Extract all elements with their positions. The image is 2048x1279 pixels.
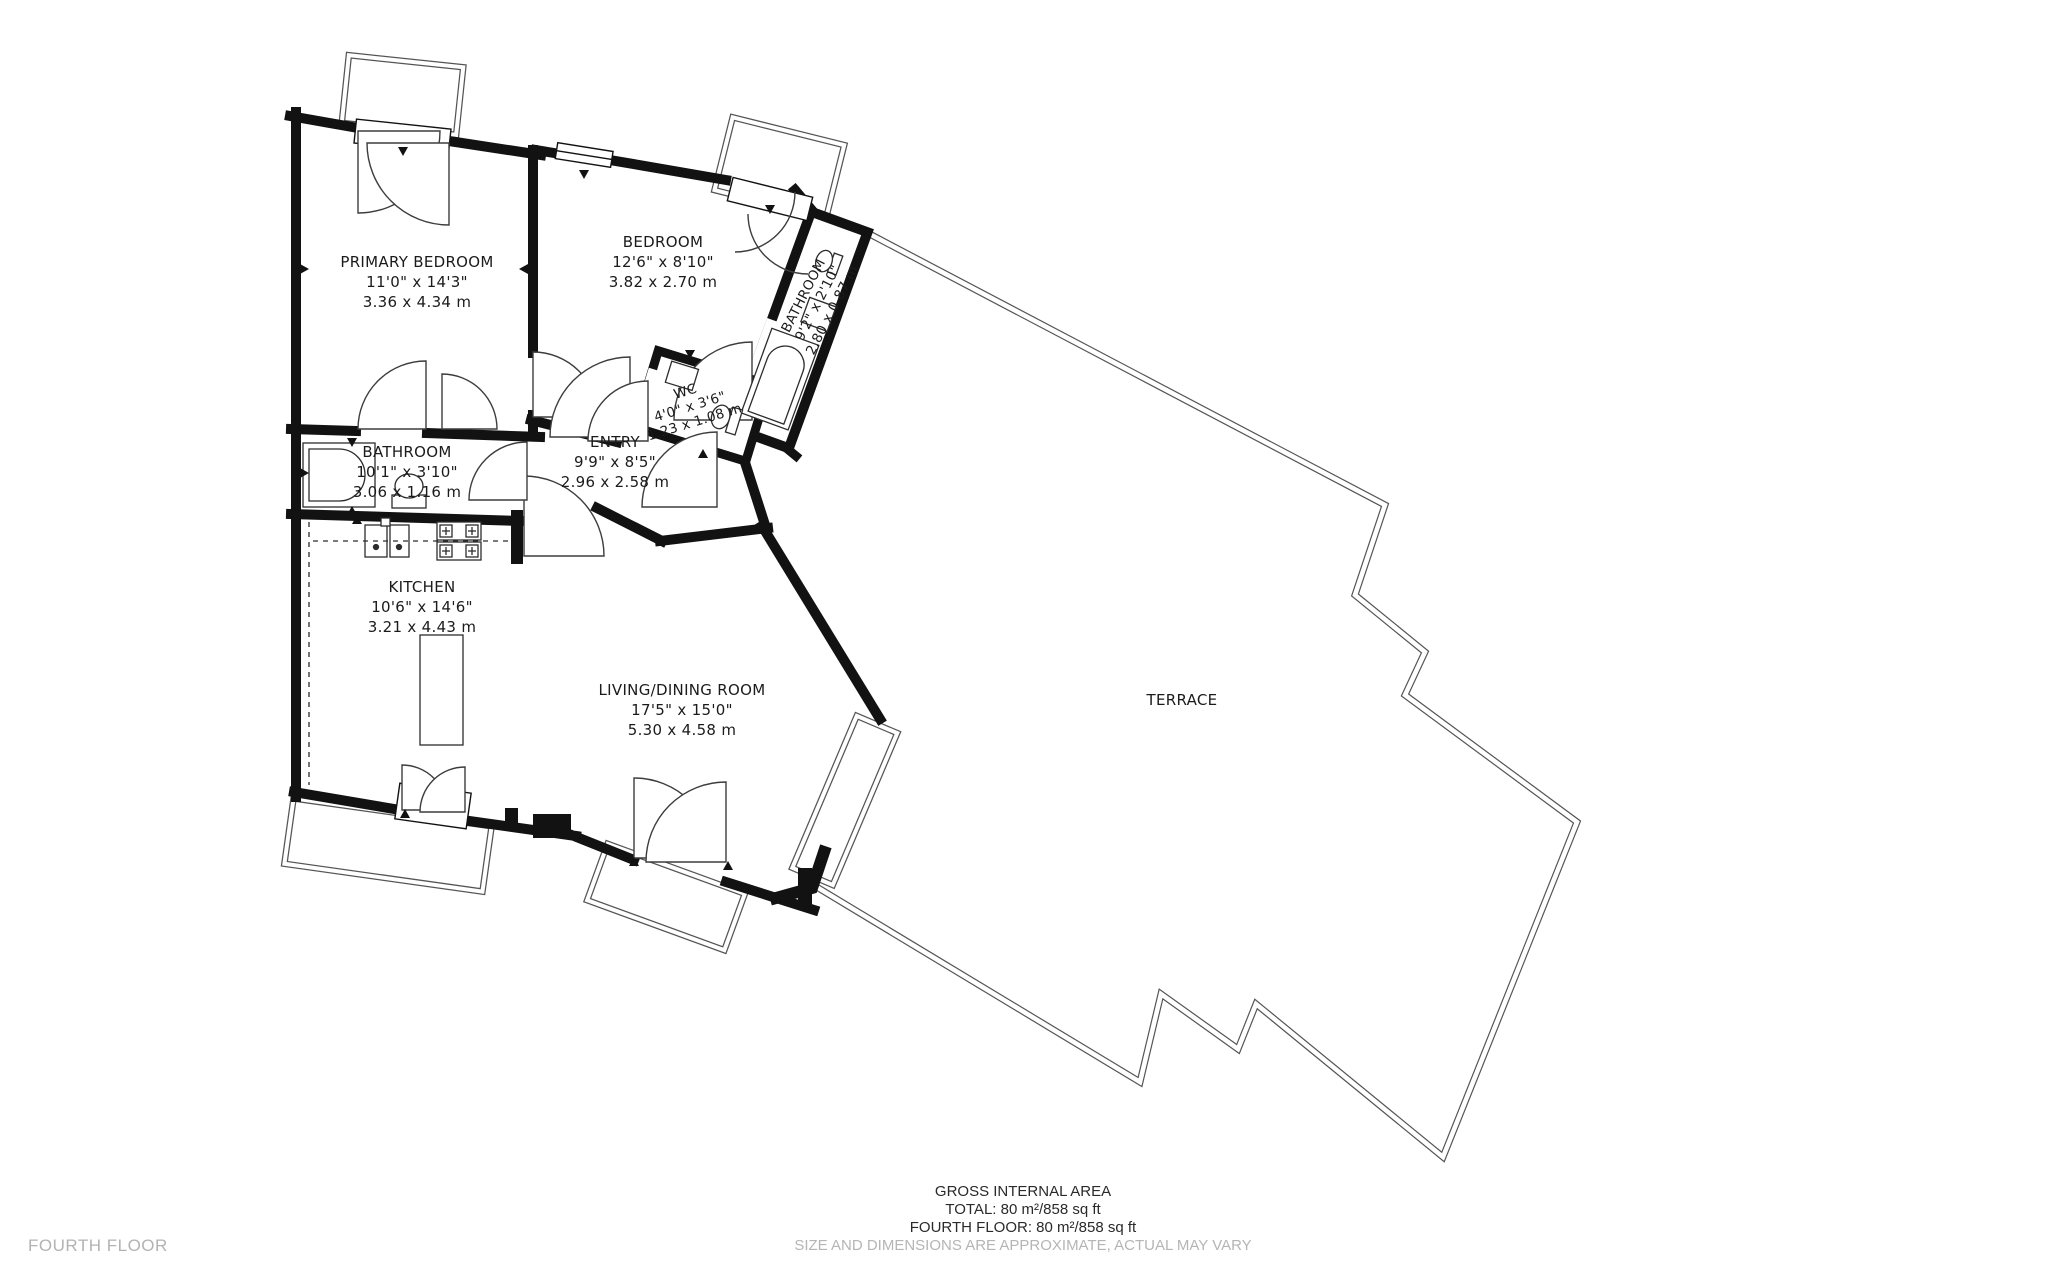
room-label-terrace: TERRACE	[1147, 690, 1218, 710]
room-dims-m: 3.36 x 4.34 m	[340, 292, 493, 312]
room-name: LIVING/DINING ROOM	[599, 680, 766, 700]
floor-plan-drawing	[0, 0, 2048, 1279]
primary-bedroom-door	[358, 361, 426, 429]
room-name: PRIMARY BEDROOM	[340, 252, 493, 272]
room-dims-ft: 10'6" x 14'6"	[368, 597, 477, 617]
room-dims-m: 5.30 x 4.58 m	[599, 720, 766, 740]
kitchen-island	[420, 635, 463, 745]
floor-plan-page: PRIMARY BEDROOM 11'0" x 14'3" 3.36 x 4.3…	[0, 0, 2048, 1279]
room-label-bathroom: BATHROOM 10'1" x 3'10" 3.06 x 1.16 m	[353, 442, 462, 502]
room-name: KITCHEN	[368, 577, 477, 597]
room-name: ENTRY	[561, 432, 670, 452]
kitchen-sink	[365, 518, 409, 557]
room-label-bedroom: BEDROOM 12'6" x 8'10" 3.82 x 2.70 m	[609, 232, 718, 292]
room-label-kitchen: KITCHEN 10'6" x 14'6" 3.21 x 4.43 m	[368, 577, 477, 637]
room-dims-ft: 12'6" x 8'10"	[609, 252, 718, 272]
room-dims-m: 3.06 x 1.16 m	[353, 482, 462, 502]
total-area: TOTAL: 80 m²/858 sq ft	[794, 1201, 1251, 1219]
floor-name-label: FOURTH FLOOR	[28, 1236, 168, 1256]
room-dims-ft: 10'1" x 3'10"	[353, 462, 462, 482]
room-dims-m: 3.21 x 4.43 m	[368, 617, 477, 637]
room-dims-m: 2.96 x 2.58 m	[561, 472, 670, 492]
gross-internal-area-title: GROSS INTERNAL AREA	[794, 1183, 1251, 1201]
disclaimer: SIZE AND DIMENSIONS ARE APPROXIMATE, ACT…	[794, 1237, 1251, 1255]
room-dims-ft: 11'0" x 14'3"	[340, 272, 493, 292]
primary-bedroom-french-door-right	[367, 143, 449, 225]
room-dims-ft: 9'9" x 8'5"	[561, 452, 670, 472]
bedroom-window	[555, 143, 613, 168]
room-label-living-dining: LIVING/DINING ROOM 17'5" x 15'0" 5.30 x …	[599, 680, 766, 740]
area-summary: GROSS INTERNAL AREA TOTAL: 80 m²/858 sq …	[794, 1183, 1251, 1255]
room-dims-ft: 17'5" x 15'0"	[599, 700, 766, 720]
hall-door	[442, 374, 497, 429]
room-label-entry: ENTRY 9'9" x 8'5" 2.96 x 2.58 m	[561, 432, 670, 492]
room-name: BATHROOM	[353, 442, 462, 462]
room-label-primary-bedroom: PRIMARY BEDROOM 11'0" x 14'3" 3.36 x 4.3…	[340, 252, 493, 312]
room-name: BEDROOM	[609, 232, 718, 252]
room-dims-m: 3.82 x 2.70 m	[609, 272, 718, 292]
floor-area: FOURTH FLOOR: 80 m²/858 sq ft	[794, 1219, 1251, 1237]
room-name: TERRACE	[1147, 690, 1218, 710]
bathroom-door	[469, 442, 527, 500]
